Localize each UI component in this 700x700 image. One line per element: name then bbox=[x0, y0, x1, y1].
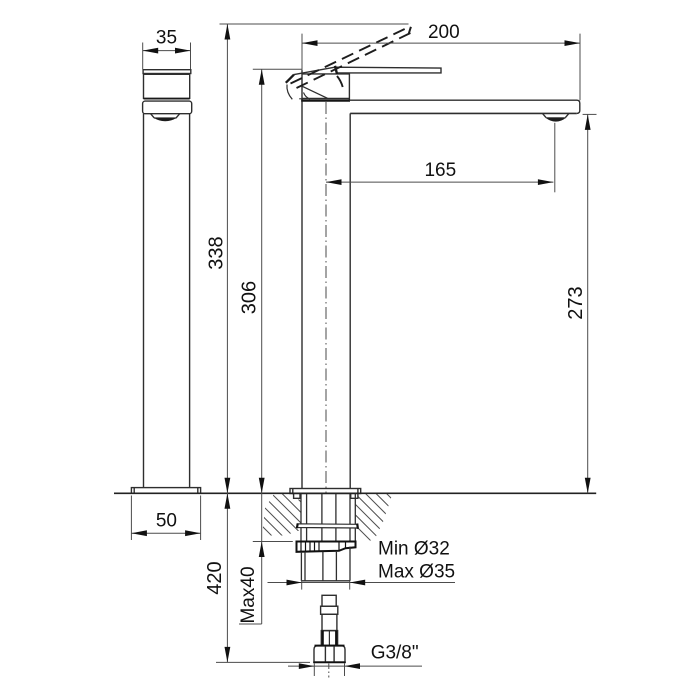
svg-text:Max Ø35: Max Ø35 bbox=[378, 562, 455, 583]
svg-text:200: 200 bbox=[428, 22, 460, 43]
svg-text:420: 420 bbox=[204, 561, 226, 594]
svg-text:165: 165 bbox=[424, 160, 456, 181]
svg-text:G3/8": G3/8" bbox=[371, 643, 419, 664]
svg-text:Min Ø32: Min Ø32 bbox=[378, 539, 450, 560]
svg-text:338: 338 bbox=[206, 236, 228, 269]
svg-text:Max40: Max40 bbox=[238, 566, 259, 623]
svg-text:306: 306 bbox=[239, 281, 261, 314]
svg-text:50: 50 bbox=[156, 511, 177, 532]
svg-text:273: 273 bbox=[565, 286, 587, 319]
svg-text:35: 35 bbox=[156, 28, 177, 49]
